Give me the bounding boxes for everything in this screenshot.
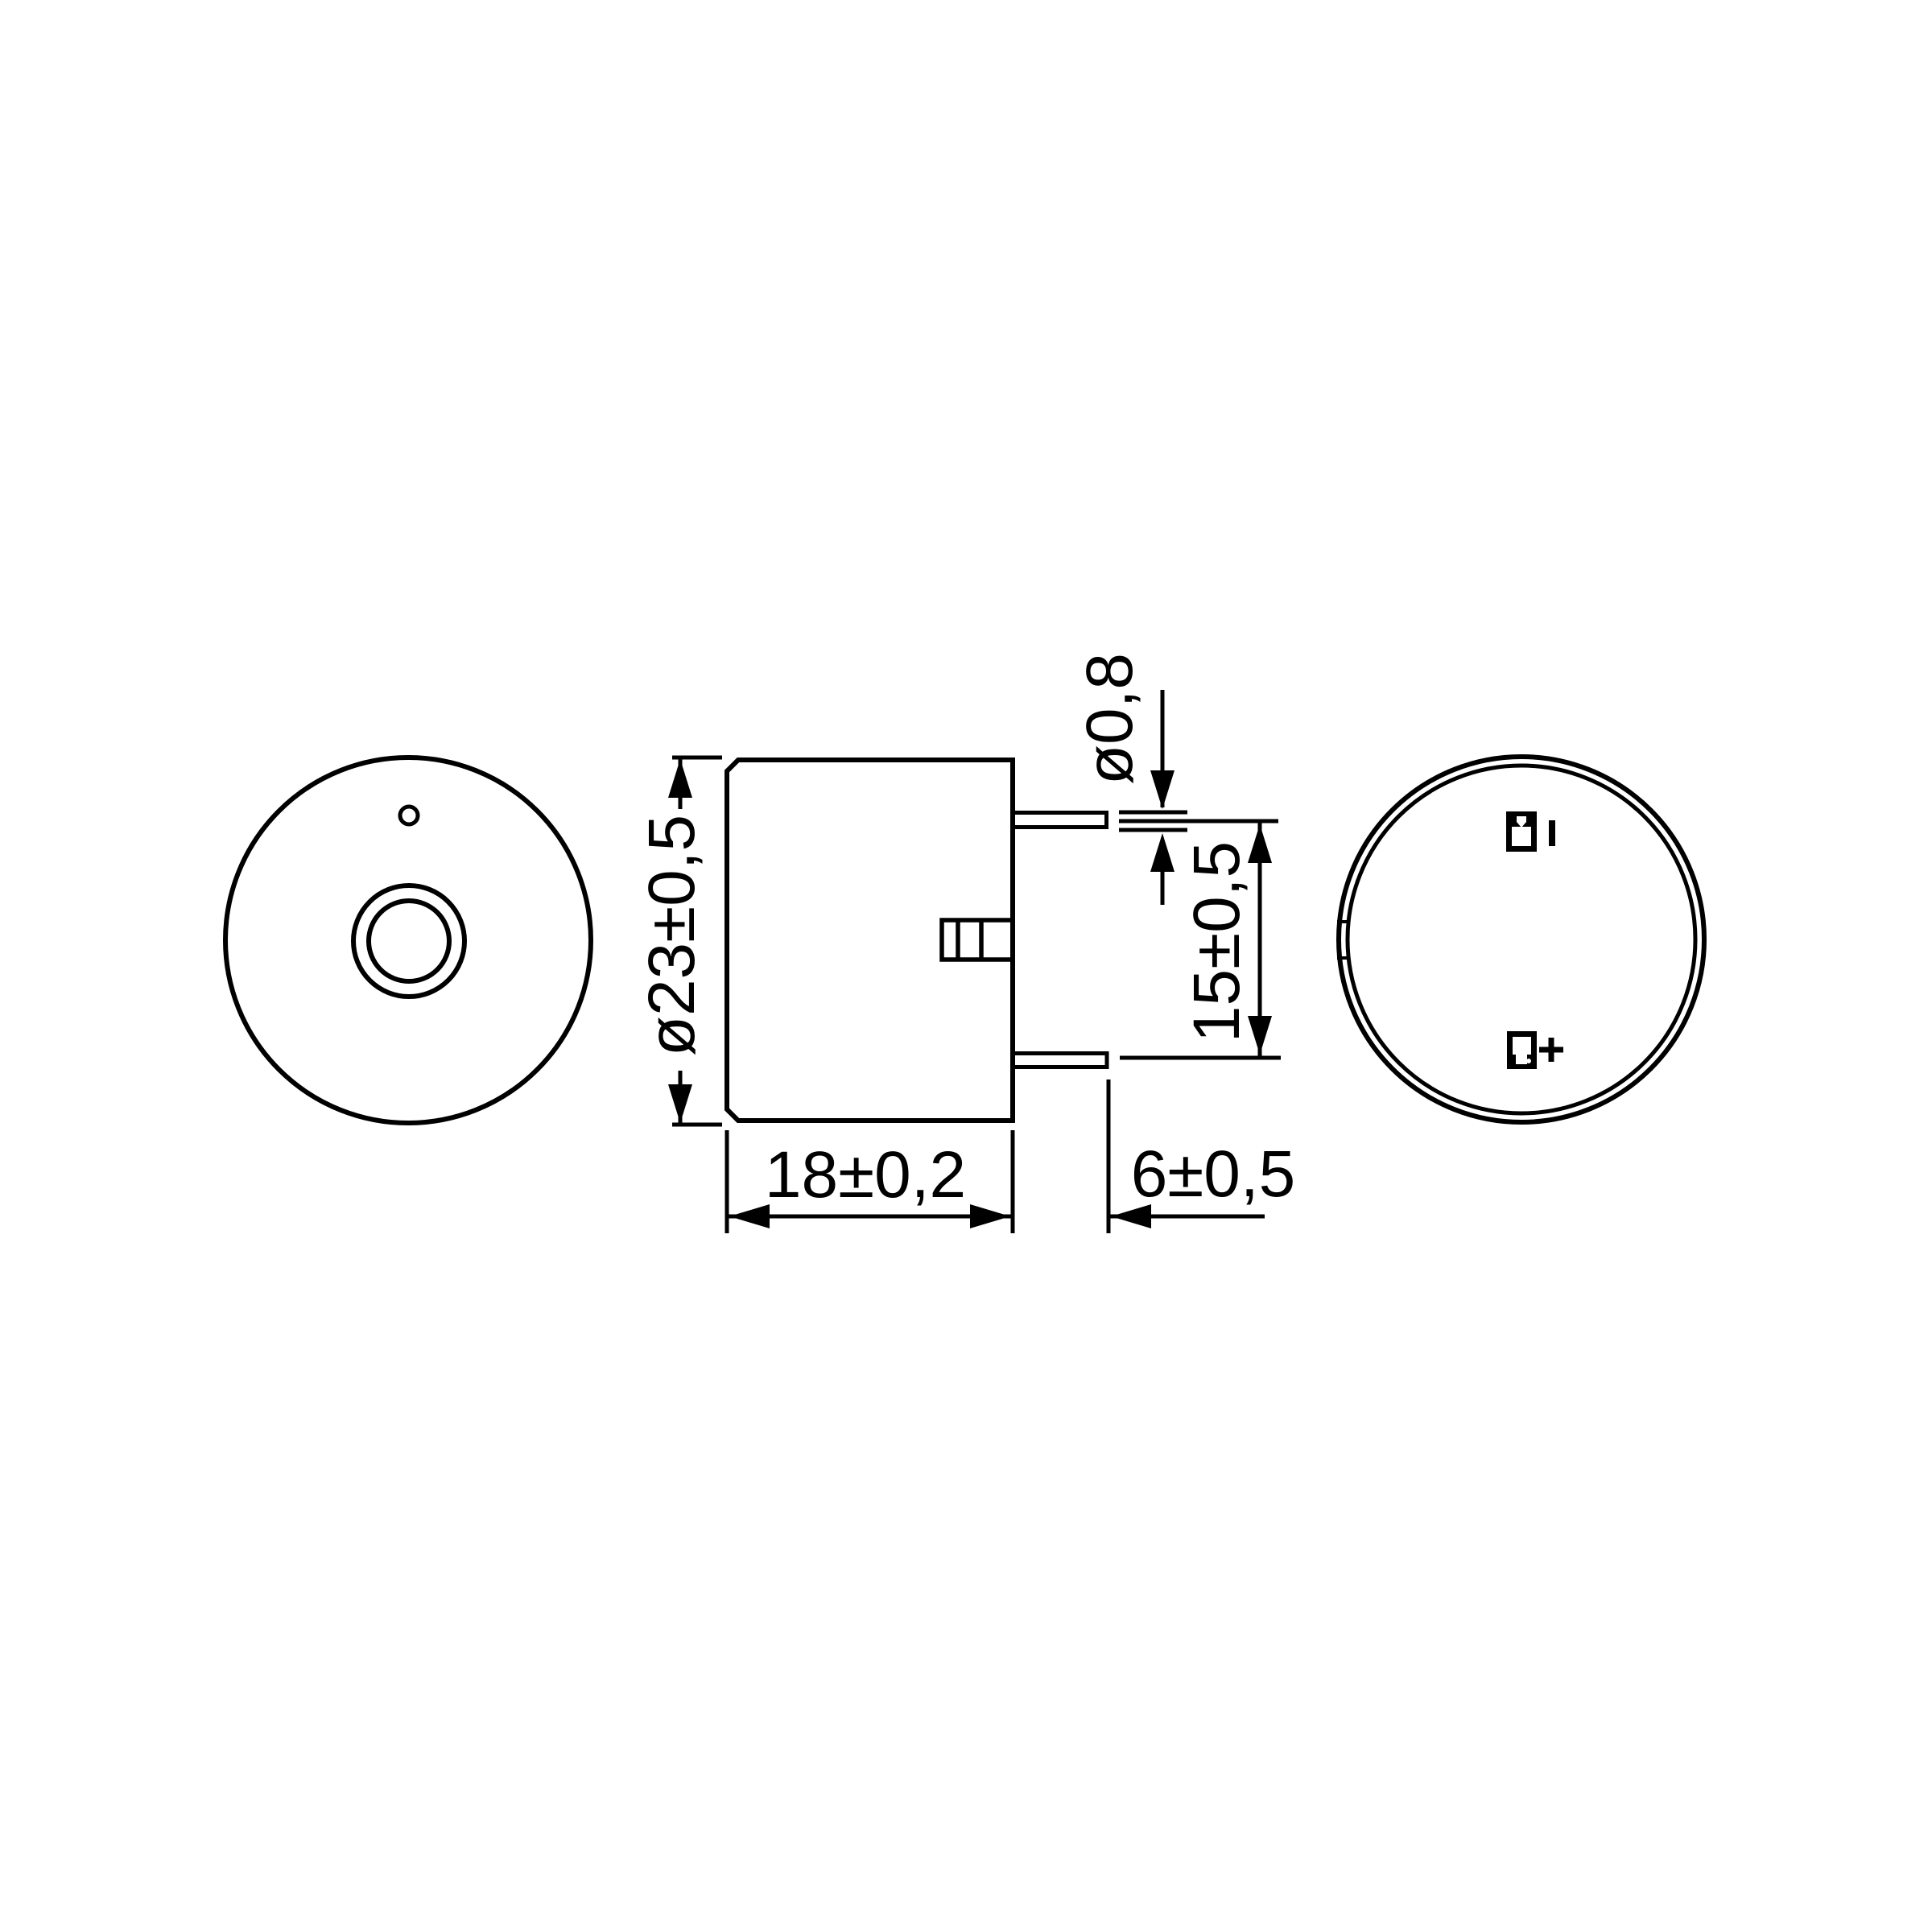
svg-text:ø23±0,5: ø23±0,5 [635,815,708,1056]
svg-text:ø0,8: ø0,8 [1073,653,1146,785]
svg-text:18±0,2: 18±0,2 [765,1138,966,1212]
svg-text:6±0,5: 6±0,5 [1131,1137,1296,1211]
svg-text:15±0,5: 15±0,5 [1180,841,1253,1042]
